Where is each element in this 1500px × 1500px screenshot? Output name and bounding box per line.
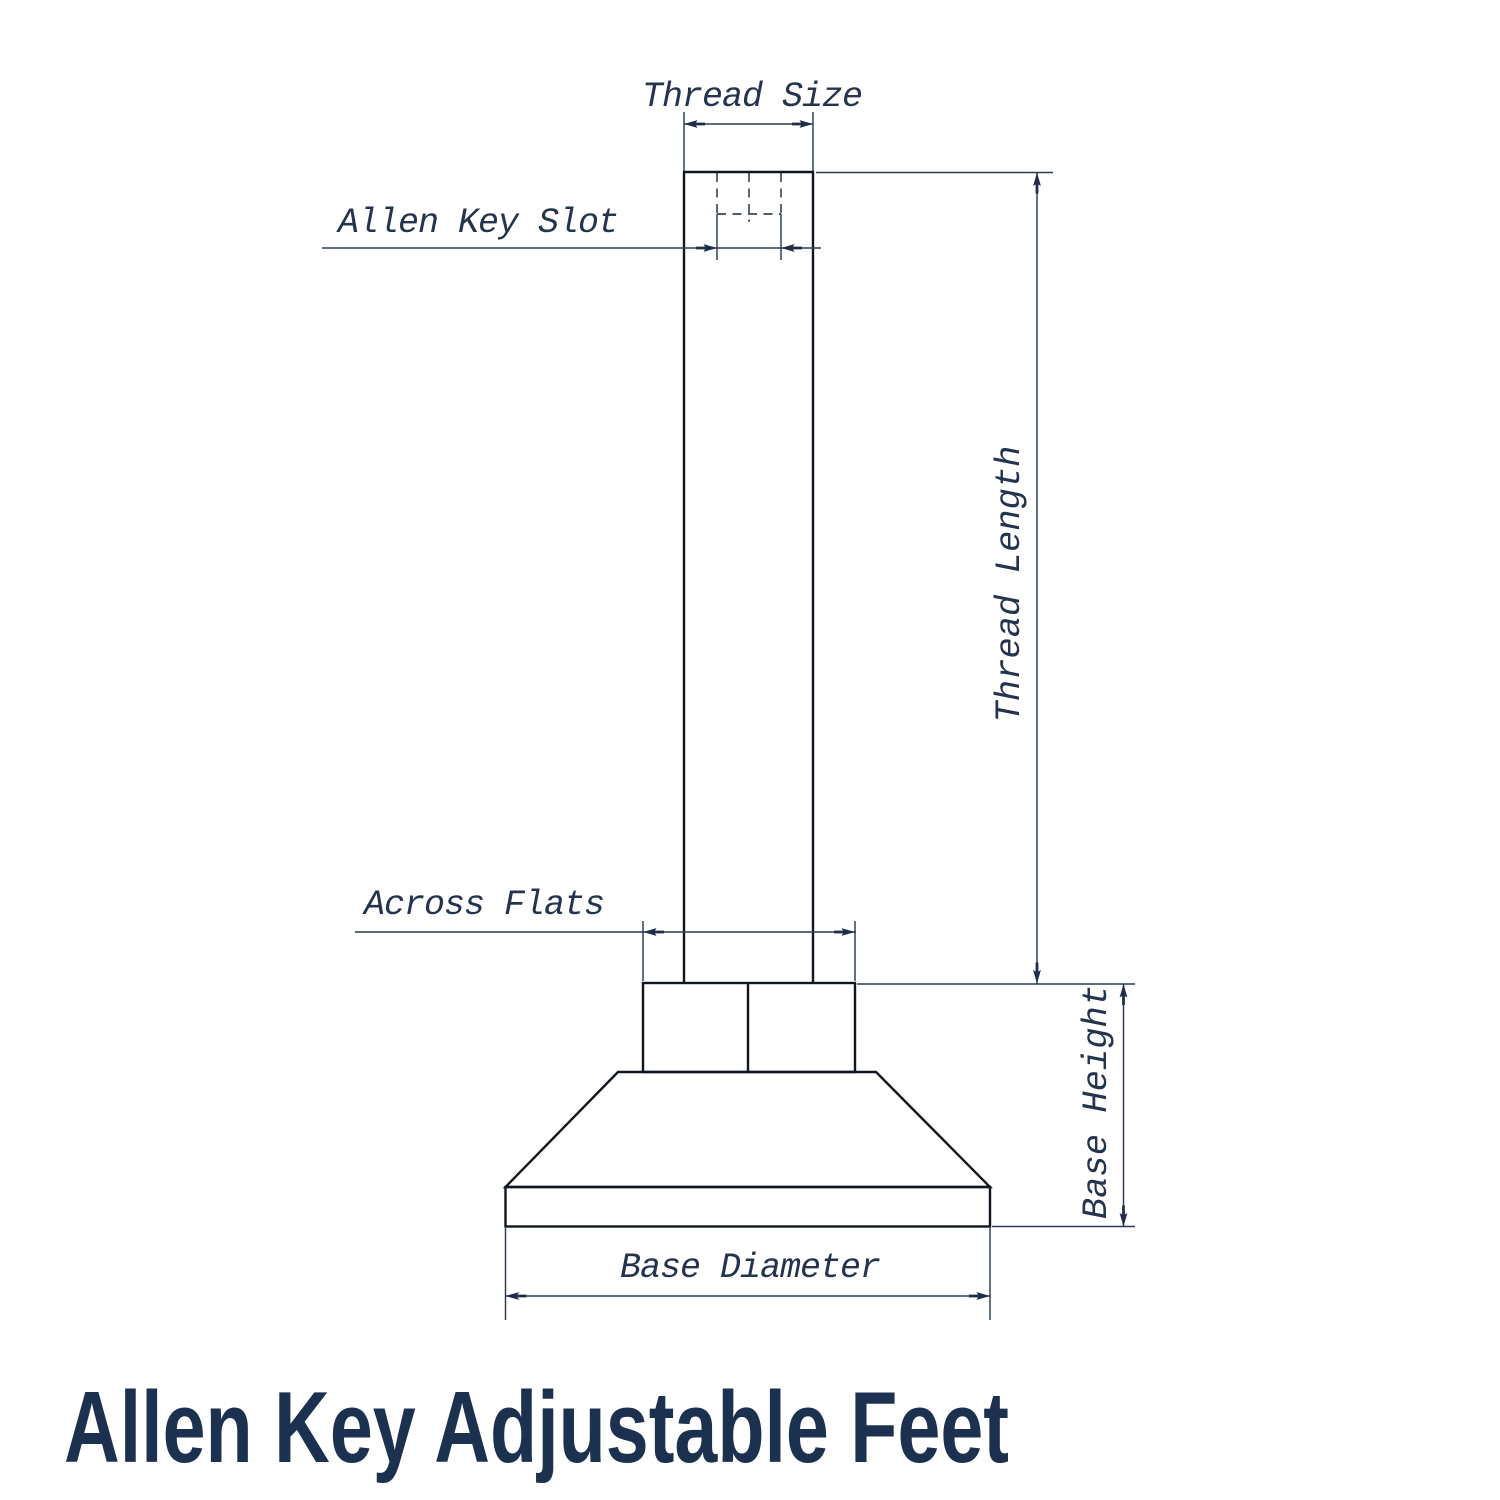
svg-text:Base Height: Base Height: [1076, 985, 1117, 1219]
svg-text:Thread Size: Thread Size: [642, 77, 862, 117]
svg-text:Base Diameter: Base Diameter: [620, 1248, 880, 1288]
svg-text:Allen Key Slot: Allen Key Slot: [336, 203, 618, 243]
svg-text:Across Flats: Across Flats: [362, 885, 604, 925]
svg-text:Thread Length: Thread Length: [989, 446, 1030, 723]
svg-text:Allen Key Adjustable Feet: Allen Key Adjustable Feet: [64, 1372, 1009, 1484]
